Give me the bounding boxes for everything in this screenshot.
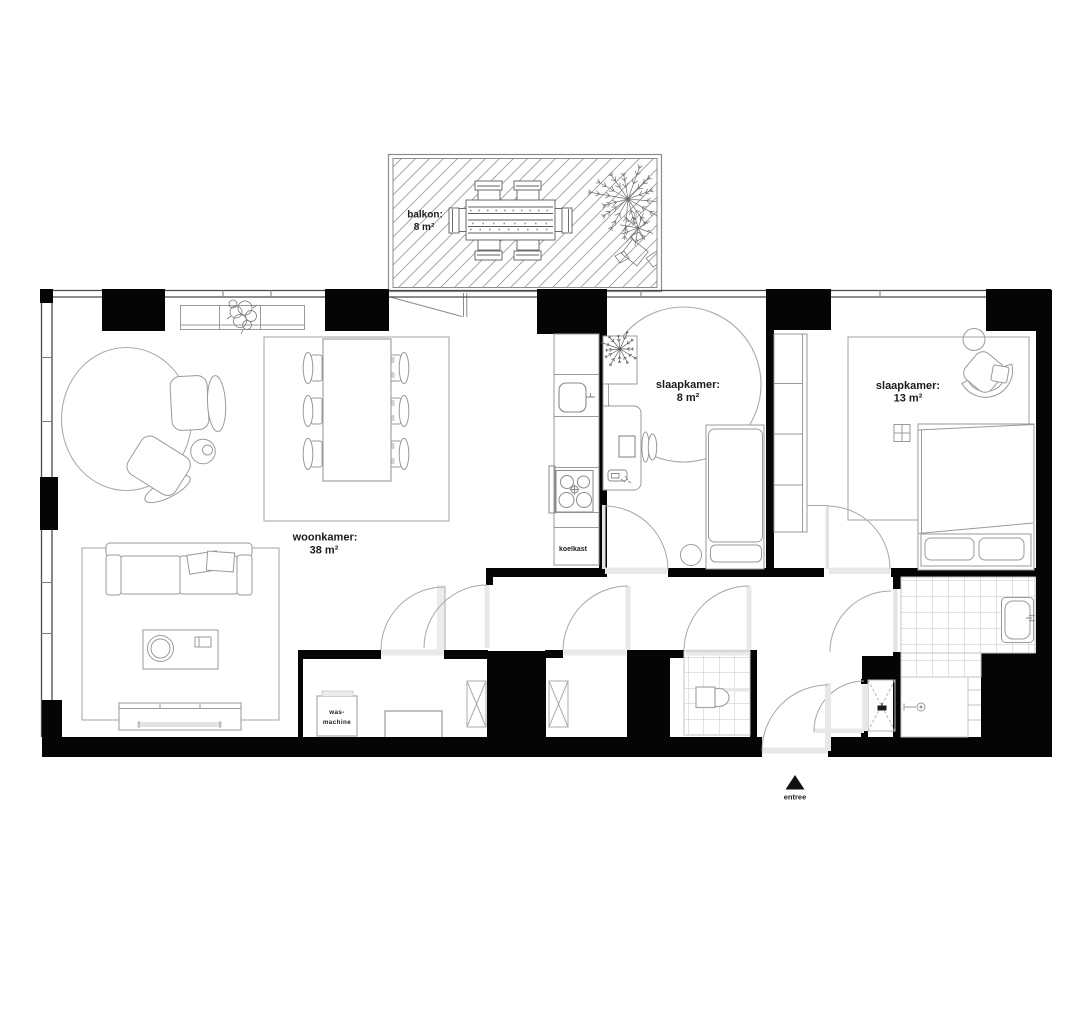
svg-text:balkon:: balkon: [407, 210, 443, 221]
svg-text:8 m²: 8 m² [677, 392, 700, 404]
svg-text:was-: was- [328, 709, 345, 716]
svg-text:slaapkamer:: slaapkamer: [656, 379, 720, 391]
svg-text:slaapkamer:: slaapkamer: [876, 380, 940, 392]
svg-text:entree: entree [784, 793, 807, 802]
svg-text:13 m²: 13 m² [894, 393, 923, 405]
svg-text:8 m²: 8 m² [414, 222, 435, 233]
svg-text:machine: machine [323, 719, 351, 726]
svg-text:woonkamer:: woonkamer: [292, 532, 358, 544]
svg-text:koelkast: koelkast [559, 546, 588, 553]
svg-text:38 m²: 38 m² [310, 545, 339, 557]
